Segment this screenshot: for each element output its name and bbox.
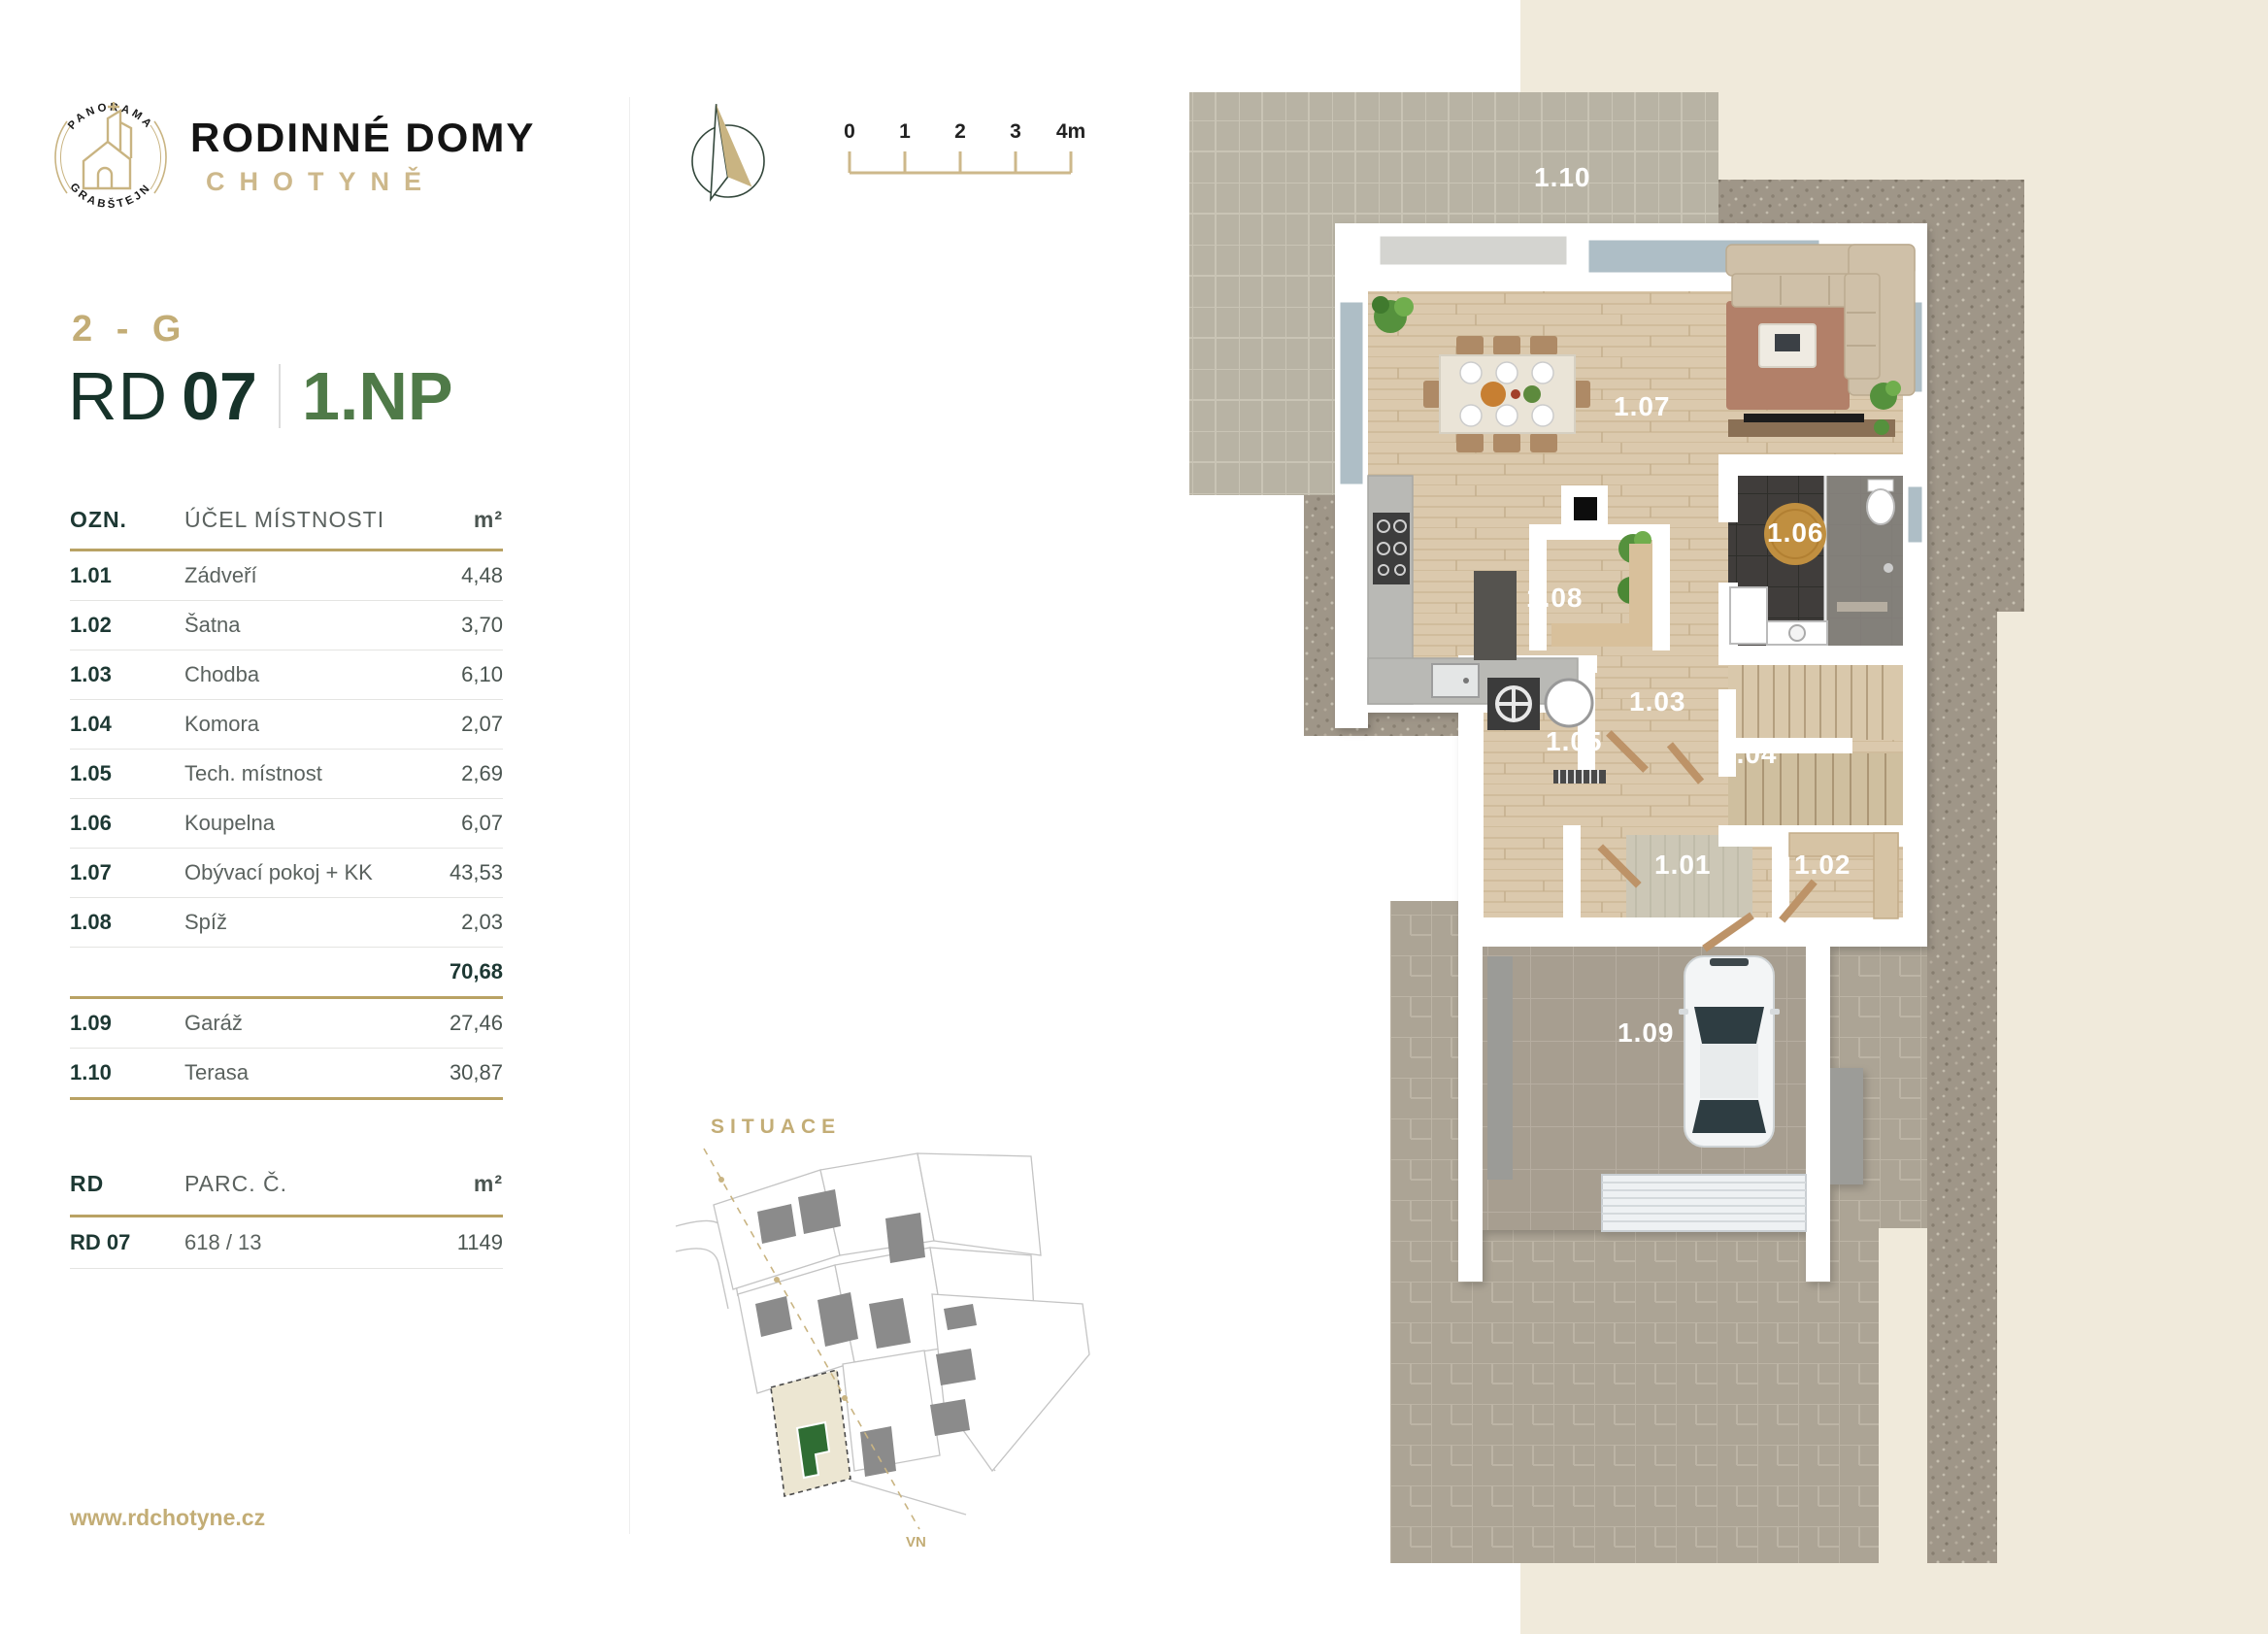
col-name: ÚČEL MÍSTNOSTI	[184, 507, 425, 533]
situace-map: SITUACE VN	[670, 1110, 1136, 1566]
scale-tick-3: 3	[1010, 120, 1021, 143]
tv-icon	[1744, 414, 1864, 422]
room-table-header: OZN. ÚČEL MÍSTNOSTI m²	[70, 507, 503, 551]
website-link[interactable]: www.rdchotyne.cz	[70, 1505, 265, 1531]
scale-tick-4: 4m	[1056, 120, 1085, 143]
floor-plan: 1.10 1.07 1.08 1.06 1.03 1.05 1.04 1.01 …	[1146, 58, 2252, 1573]
shower-bench	[1837, 602, 1887, 612]
brand-logo: PANORAMA GRABŠTEJN	[37, 83, 184, 231]
washer-icon	[1730, 587, 1767, 644]
logo-arc-right	[154, 121, 166, 193]
compass-north-icon	[670, 89, 786, 225]
floor-label: 1.NP	[302, 357, 453, 435]
room-label: 1.04	[1720, 739, 1778, 769]
sink-icon	[1432, 664, 1479, 697]
subtotal-row: 70,68	[70, 948, 503, 999]
boiler-icon	[1546, 680, 1592, 726]
table-row: 1.09 Garáž 27,46	[70, 999, 503, 1049]
room-label: 1.08	[1526, 583, 1584, 613]
table-row: 1.01 Zádveří 4,48	[70, 551, 503, 601]
shower-drain	[1884, 563, 1893, 573]
table-row: 1.03 Chodba 6,10	[70, 650, 503, 700]
parcel-row: RD 07 618 / 13 1149	[70, 1217, 503, 1269]
table-row: 1.10 Terasa 30,87	[70, 1049, 503, 1100]
col-ozn: OZN.	[70, 507, 184, 533]
room-table: OZN. ÚČEL MÍSTNOSTI m² 1.01 Zádveří 4,48…	[70, 507, 503, 1100]
table-row: 1.08 Spíž 2,03	[70, 898, 503, 948]
col-area: m²	[425, 507, 503, 533]
room-label: 1.02	[1794, 850, 1851, 880]
col-rd: RD	[70, 1171, 184, 1197]
house-number: 07	[182, 357, 257, 435]
garage-pillar	[1830, 1068, 1863, 1184]
chimney-flue	[1561, 485, 1608, 530]
table-row: 1.04 Komora 2,07	[70, 700, 503, 750]
situace-title: SITUACE	[711, 1116, 841, 1138]
room-label: 1.05	[1546, 726, 1603, 756]
room-label: 1.10	[1534, 162, 1591, 192]
car-icon	[1679, 956, 1780, 1147]
table-row: 1.06 Koupelna 6,07	[70, 799, 503, 849]
column-divider	[629, 97, 630, 1534]
col-area: m²	[425, 1171, 503, 1197]
room-label: 1.07	[1614, 391, 1671, 421]
scale-tick-2: 2	[954, 120, 966, 143]
logo-arc-left	[55, 121, 67, 193]
col-parc: PARC. Č.	[184, 1171, 425, 1197]
parcel-table-header: RD PARC. Č. m²	[70, 1171, 503, 1217]
laptop-icon	[1775, 334, 1800, 351]
variant-code: 2 - G	[72, 309, 187, 350]
room-label: 1.09	[1618, 1017, 1675, 1048]
parcel-table: RD PARC. Č. m² RD 07 618 / 13 1149	[70, 1171, 503, 1269]
room-label: 1.01	[1654, 850, 1712, 880]
tall-cabinet	[1474, 571, 1517, 660]
garage-side-strip	[1487, 956, 1513, 1180]
vn-label: VN	[906, 1534, 926, 1551]
scale-tick-1: 1	[899, 120, 911, 143]
toilet-icon	[1867, 489, 1894, 524]
house-code: RD	[68, 357, 168, 435]
room-label: 1.03	[1629, 686, 1686, 717]
scale-bar: 0 1 2 3 4m	[835, 109, 1087, 186]
table-row: 1.05 Tech. místnost 2,69	[70, 750, 503, 799]
subtotal-value: 70,68	[425, 959, 503, 984]
basin-icon	[1789, 625, 1805, 641]
plan-title: RD 07 1.NP	[68, 357, 453, 435]
brand-subtitle: CHOTYNĚ	[206, 167, 436, 197]
table-row: 1.07 Obývací pokoj + KK 43,53	[70, 849, 503, 898]
brand-title: RODINNÉ DOMY	[190, 115, 535, 161]
table-row: 1.02 Šatna 3,70	[70, 601, 503, 650]
scale-tick-0: 0	[844, 120, 855, 143]
room-label: 1.06	[1767, 517, 1824, 548]
title-divider	[279, 364, 281, 428]
